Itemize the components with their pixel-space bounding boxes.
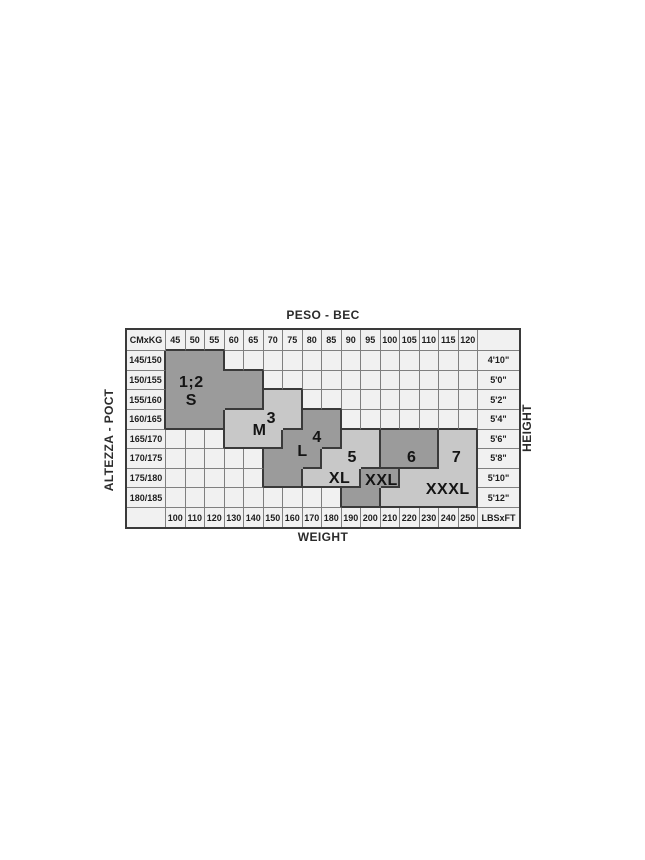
size-grid-cell: [244, 430, 264, 450]
lbs-footer-cell: 160: [283, 508, 303, 527]
kg-header-cell: 50: [186, 330, 206, 351]
lbs-footer-cell: 190: [342, 508, 362, 527]
size-grid-cell: [322, 430, 342, 450]
size-grid-cell: [342, 488, 362, 508]
kg-header-cell: 120: [459, 330, 479, 351]
size-grid-cell: [420, 390, 440, 410]
size-grid-cell: [264, 430, 284, 450]
size-grid-cell: [186, 390, 206, 410]
size-grid-cell: [322, 469, 342, 489]
size-table: CMxKG45505560657075808590951001051101151…: [125, 328, 521, 529]
size-grid-cell: [439, 410, 459, 430]
size-grid-cell: [283, 430, 303, 450]
ft-row-label-cell: 5'6": [478, 430, 519, 450]
kg-header-cell: 100: [381, 330, 401, 351]
size-grid-cell: [459, 351, 479, 371]
size-grid-cell: [342, 449, 362, 469]
size-grid-cell: [186, 449, 206, 469]
lbs-footer-cell: 110: [186, 508, 206, 527]
chart-title-bottom: WEIGHT: [125, 530, 521, 544]
size-grid-cell: [166, 469, 186, 489]
size-grid-cell: [420, 488, 440, 508]
kg-header-cell: 65: [244, 330, 264, 351]
size-grid-cell: [361, 410, 381, 430]
size-grid-cell: [166, 351, 186, 371]
size-grid-cell: [303, 410, 323, 430]
size-grid-cell: [420, 430, 440, 450]
lbs-footer-cell: 220: [400, 508, 420, 527]
size-grid-cell: [264, 390, 284, 410]
size-grid-cell: [459, 469, 479, 489]
lbs-footer-cell: 230: [420, 508, 440, 527]
size-grid-cell: [342, 390, 362, 410]
lbs-footer-cell: 180: [322, 508, 342, 527]
lbs-footer-cell: 130: [225, 508, 245, 527]
size-grid-cell: [283, 449, 303, 469]
lbs-footer-cell: 240: [439, 508, 459, 527]
size-grid-cell: [283, 390, 303, 410]
size-grid-cell: [381, 351, 401, 371]
size-grid-cell: [186, 469, 206, 489]
right-axis-label: HEIGHT: [520, 318, 534, 538]
size-grid-cell: [166, 430, 186, 450]
size-grid-cell: [400, 410, 420, 430]
size-grid-cell: [420, 351, 440, 371]
size-grid-cell: [361, 430, 381, 450]
size-grid-cell: [205, 488, 225, 508]
size-grid-cell: [400, 430, 420, 450]
ft-row-label-cell: 5'2": [478, 390, 519, 410]
size-grid-cell: [303, 371, 323, 391]
chart-title-top: PESO - ВЕС: [125, 308, 521, 322]
size-grid-cell: [186, 371, 206, 391]
kg-header-cell: 80: [303, 330, 323, 351]
size-grid-cell: [439, 390, 459, 410]
size-grid-cell: [342, 371, 362, 391]
size-grid-cell: [166, 488, 186, 508]
size-grid-cell: [322, 488, 342, 508]
size-grid-cell: [283, 410, 303, 430]
size-grid-cell: [439, 469, 459, 489]
size-grid-cell: [244, 488, 264, 508]
lbs-footer-cell: 210: [381, 508, 401, 527]
size-grid-cell: [244, 449, 264, 469]
size-grid-cell: [420, 410, 440, 430]
size-grid-cell: [166, 449, 186, 469]
size-grid-cell: [322, 351, 342, 371]
cm-row-label-cell: 150/155: [127, 371, 166, 391]
size-chart-grid: CMxKG45505560657075808590951001051101151…: [127, 330, 519, 527]
size-grid-cell: [342, 469, 362, 489]
size-grid-cell: [381, 488, 401, 508]
corner-lbsxft-cell: LBSxFT: [478, 508, 519, 527]
size-grid-cell: [303, 390, 323, 410]
size-grid-cell: [303, 488, 323, 508]
size-grid-cell: [439, 351, 459, 371]
cm-row-label-cell: 175/180: [127, 469, 166, 489]
size-grid-cell: [459, 390, 479, 410]
size-grid-cell: [205, 351, 225, 371]
size-grid-cell: [361, 449, 381, 469]
size-grid-cell: [264, 469, 284, 489]
size-grid-cell: [420, 449, 440, 469]
size-grid-cell: [322, 371, 342, 391]
size-grid-cell: [439, 371, 459, 391]
size-grid-cell: [244, 410, 264, 430]
size-grid-cell: [225, 449, 245, 469]
size-grid-cell: [361, 390, 381, 410]
size-grid-cell: [381, 390, 401, 410]
size-grid-cell: [205, 469, 225, 489]
kg-header-cell: 75: [283, 330, 303, 351]
size-grid-cell: [225, 410, 245, 430]
cm-row-label-cell: 160/165: [127, 410, 166, 430]
size-grid-cell: [361, 351, 381, 371]
size-grid-cell: [400, 390, 420, 410]
ft-row-label-cell: 5'0": [478, 371, 519, 391]
cm-row-label-cell: 180/185: [127, 488, 166, 508]
size-grid-cell: [186, 351, 206, 371]
kg-header-cell: 90: [342, 330, 362, 351]
size-grid-cell: [381, 469, 401, 489]
size-grid-cell: [342, 430, 362, 450]
size-grid-cell: [186, 430, 206, 450]
size-grid-cell: [303, 351, 323, 371]
size-grid-cell: [381, 371, 401, 391]
ft-row-label-cell: 5'10": [478, 469, 519, 489]
lbs-footer-cell: 150: [264, 508, 284, 527]
size-grid-cell: [186, 410, 206, 430]
cm-row-label-cell: 170/175: [127, 449, 166, 469]
size-grid-cell: [361, 469, 381, 489]
cm-row-label-cell: 155/160: [127, 390, 166, 410]
size-grid-cell: [459, 371, 479, 391]
size-grid-cell: [225, 469, 245, 489]
size-grid-cell: [361, 488, 381, 508]
kg-header-cell: 60: [225, 330, 245, 351]
size-grid-cell: [303, 469, 323, 489]
size-grid-cell: [264, 449, 284, 469]
size-grid-cell: [283, 488, 303, 508]
size-grid-cell: [381, 430, 401, 450]
ft-row-label-cell: 5'12": [478, 488, 519, 508]
empty-header-cell: [478, 330, 519, 351]
size-grid-cell: [186, 488, 206, 508]
size-grid-cell: [244, 371, 264, 391]
size-grid-cell: [264, 410, 284, 430]
size-grid-cell: [166, 410, 186, 430]
size-grid-cell: [225, 351, 245, 371]
kg-header-cell: 85: [322, 330, 342, 351]
ft-row-label-cell: 5'4": [478, 410, 519, 430]
kg-header-cell: 55: [205, 330, 225, 351]
kg-header-cell: 95: [361, 330, 381, 351]
cm-row-label-cell: 165/170: [127, 430, 166, 450]
size-grid-cell: [322, 449, 342, 469]
empty-footer-cell: [127, 508, 166, 527]
kg-header-cell: 115: [439, 330, 459, 351]
size-grid-cell: [439, 488, 459, 508]
size-grid-cell: [205, 449, 225, 469]
size-grid-cell: [361, 371, 381, 391]
size-grid-cell: [381, 410, 401, 430]
size-grid-cell: [205, 371, 225, 391]
size-grid-cell: [322, 410, 342, 430]
size-grid-cell: [225, 371, 245, 391]
size-grid-cell: [400, 449, 420, 469]
size-grid-cell: [166, 390, 186, 410]
lbs-footer-cell: 120: [205, 508, 225, 527]
corner-cmxkg-cell: CMxKG: [127, 330, 166, 351]
size-grid-cell: [459, 488, 479, 508]
size-grid-cell: [342, 410, 362, 430]
size-grid-cell: [205, 430, 225, 450]
cm-row-label-cell: 145/150: [127, 351, 166, 371]
size-grid-cell: [205, 390, 225, 410]
size-grid-cell: [400, 371, 420, 391]
lbs-footer-cell: 170: [303, 508, 323, 527]
size-grid-cell: [459, 430, 479, 450]
size-grid-cell: [303, 449, 323, 469]
size-grid-cell: [283, 351, 303, 371]
lbs-footer-cell: 100: [166, 508, 186, 527]
kg-header-cell: 105: [400, 330, 420, 351]
size-grid-cell: [283, 469, 303, 489]
size-grid-cell: [264, 351, 284, 371]
ft-row-label-cell: 5'8": [478, 449, 519, 469]
kg-header-cell: 70: [264, 330, 284, 351]
size-grid-cell: [264, 371, 284, 391]
size-grid-cell: [225, 430, 245, 450]
size-grid-cell: [400, 488, 420, 508]
size-grid-cell: [322, 390, 342, 410]
size-grid-cell: [166, 371, 186, 391]
size-grid-cell: [264, 488, 284, 508]
lbs-footer-cell: 140: [244, 508, 264, 527]
size-grid-cell: [459, 449, 479, 469]
left-axis-label: ALTEZZA - РОСТ: [102, 330, 116, 550]
size-grid-cell: [381, 449, 401, 469]
size-grid-cell: [225, 488, 245, 508]
size-grid-cell: [420, 371, 440, 391]
size-grid-cell: [420, 469, 440, 489]
size-grid-cell: [303, 430, 323, 450]
size-grid-cell: [225, 390, 245, 410]
ft-row-label-cell: 4'10": [478, 351, 519, 371]
size-grid-cell: [439, 449, 459, 469]
size-grid-cell: [205, 410, 225, 430]
size-grid-cell: [342, 351, 362, 371]
size-grid-cell: [244, 469, 264, 489]
size-grid-cell: [244, 351, 264, 371]
kg-header-cell: 110: [420, 330, 440, 351]
size-grid-cell: [400, 351, 420, 371]
size-grid-cell: [283, 371, 303, 391]
lbs-footer-cell: 200: [361, 508, 381, 527]
kg-header-cell: 45: [166, 330, 186, 351]
size-grid-cell: [400, 469, 420, 489]
lbs-footer-cell: 250: [459, 508, 479, 527]
size-grid-cell: [244, 390, 264, 410]
size-grid-cell: [459, 410, 479, 430]
size-chart-page: PESO - ВЕС ALTEZZA - РОСТ HEIGHT CMxKG45…: [0, 0, 645, 860]
size-grid-cell: [439, 430, 459, 450]
